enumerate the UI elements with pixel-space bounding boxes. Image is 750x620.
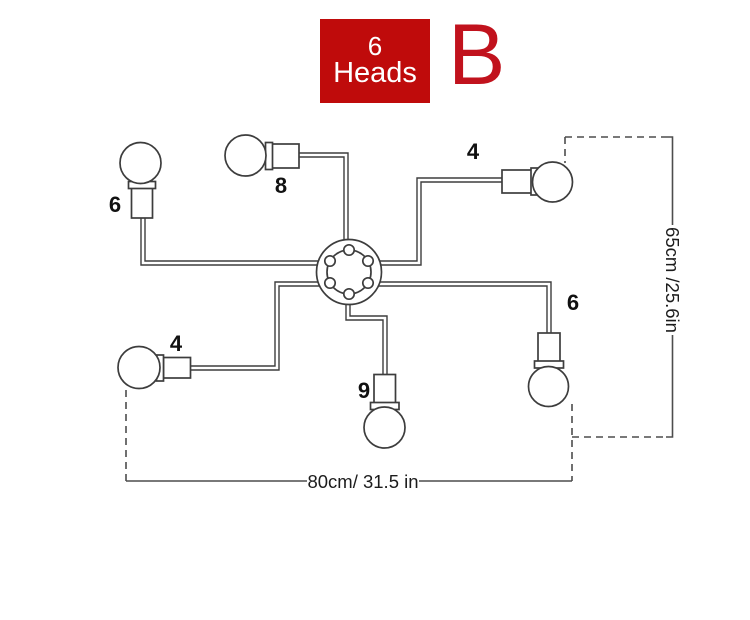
bulb bbox=[533, 162, 573, 202]
bulb bbox=[529, 367, 569, 407]
pipe-arm-right bbox=[360, 284, 549, 338]
pipe-fill bbox=[184, 284, 338, 368]
hub-bolt bbox=[363, 256, 373, 266]
height-dimension: 65cm /25.6in bbox=[565, 137, 683, 437]
pipe-arm-upper-right bbox=[360, 180, 506, 263]
head-bottom bbox=[364, 375, 405, 449]
head-upper-right bbox=[502, 162, 573, 202]
bulb bbox=[225, 135, 266, 176]
hub-bolt bbox=[363, 278, 373, 288]
socket bbox=[272, 144, 299, 168]
socket bbox=[164, 358, 191, 379]
arm-label-right: 6 bbox=[567, 290, 579, 315]
ceiling-hub bbox=[317, 240, 382, 305]
pipe-fill bbox=[143, 210, 338, 263]
socket bbox=[538, 333, 560, 362]
arm-label-bottom: 9 bbox=[358, 378, 370, 403]
pipe-arm-upper-left bbox=[143, 210, 338, 263]
pipe-fill bbox=[360, 284, 549, 338]
pipe-fill bbox=[360, 180, 506, 263]
pipe-outline bbox=[360, 284, 549, 338]
arm-label-lower-left: 4 bbox=[170, 331, 183, 356]
head-top bbox=[225, 135, 299, 176]
arm-label-upper-right: 4 bbox=[467, 139, 480, 164]
pipe-arm-lower-left bbox=[184, 284, 338, 368]
socket bbox=[374, 375, 396, 404]
hub-bolt bbox=[344, 289, 354, 299]
height-dimension-label: 65cm /25.6in bbox=[662, 227, 683, 333]
hub-bolt bbox=[325, 278, 335, 288]
socket bbox=[132, 188, 153, 218]
hub-bolt bbox=[325, 256, 335, 266]
dimension-line bbox=[666, 335, 673, 437]
product-image: 6 Heads B bbox=[0, 0, 750, 620]
pipe-outline bbox=[360, 180, 506, 263]
bulb bbox=[364, 407, 405, 448]
pipe-outline bbox=[143, 210, 338, 263]
bulb bbox=[118, 347, 160, 389]
dimension-line bbox=[666, 137, 673, 225]
pipe-outline bbox=[184, 284, 338, 368]
lamp-diagram: 6 8 4 6 4 9 65cm /25.6in 80cm/ 31.5 in bbox=[0, 0, 750, 620]
arm-label-upper-left: 6 bbox=[109, 192, 121, 217]
bulb bbox=[120, 143, 161, 184]
width-dimension-label: 80cm/ 31.5 in bbox=[307, 471, 418, 492]
socket bbox=[502, 170, 532, 193]
head-right bbox=[529, 333, 569, 407]
width-dimension: 80cm/ 31.5 in bbox=[126, 390, 572, 492]
arm-label-top: 8 bbox=[275, 173, 287, 198]
hub-bolt bbox=[344, 245, 354, 255]
head-upper-left bbox=[120, 143, 161, 219]
